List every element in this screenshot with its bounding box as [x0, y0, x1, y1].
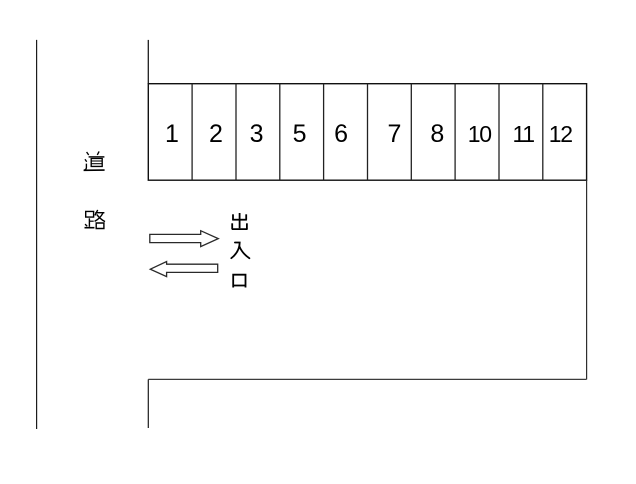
svg-text:12: 12 — [549, 121, 572, 147]
svg-text:3: 3 — [250, 120, 264, 148]
svg-text:6: 6 — [334, 120, 348, 148]
svg-text:1: 1 — [165, 120, 179, 148]
svg-text:10: 10 — [468, 121, 491, 147]
svg-text:8: 8 — [430, 120, 444, 148]
svg-text:5: 5 — [293, 120, 307, 148]
svg-text:2: 2 — [209, 120, 223, 148]
svg-text:11: 11 — [512, 121, 534, 147]
svg-text:7: 7 — [388, 120, 402, 148]
